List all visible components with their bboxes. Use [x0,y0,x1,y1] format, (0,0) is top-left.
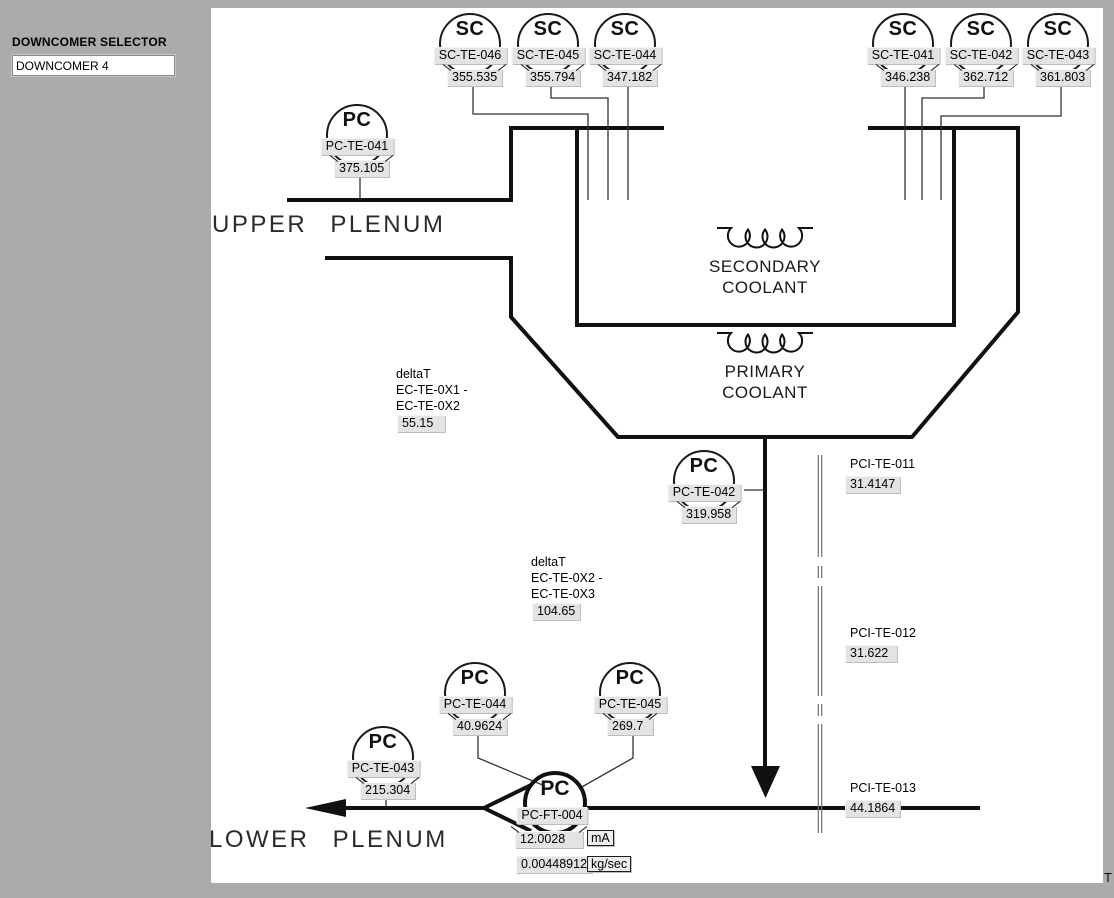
instrument-value: 355.794 [525,69,580,86]
delta-t-tag-a: EC-TE-0X2 - [531,570,641,586]
instrument-value: 362.712 [958,69,1013,86]
flow-rate-unit: kg/sec [587,856,631,872]
delta-t-tag-b: EC-TE-0X3 [531,586,641,602]
instrument-value: 319.958 [681,506,736,523]
delta-t-title: deltaT [396,366,506,382]
delta-t-value: 55.15 [397,415,445,432]
instrument-value: 347.182 [602,69,657,86]
secondary-coolant-label: SECONDARY COOLANT [709,256,821,298]
instrument-sc-te-041: SC SC-TE-041 346.238 [872,13,934,75]
instrument-sc-te-045: SC SC-TE-045 355.794 [517,13,579,75]
instrument-pc-te-045: PC PC-TE-045 269.7 [599,662,661,724]
instrument-pc-te-044: PC PC-TE-044 40.9624 [444,662,506,724]
flow-rate-value: 0.00448912 [516,856,592,873]
instrument-sc-te-044: SC SC-TE-044 347.182 [594,13,656,75]
pci-te-012-block: PCI-TE-012 31.622 [845,626,915,666]
instrument-sc-te-043: SC SC-TE-043 361.803 [1027,13,1089,75]
pci-sensor-tag: PCI-TE-012 [850,626,916,640]
downcomer-selector-input[interactable] [12,55,175,76]
instrument-letter: PC [673,455,735,478]
instrument-sc-te-042: SC SC-TE-042 362.712 [950,13,1012,75]
lower-plenum-label: LOWER PLENUM [209,826,448,854]
instrument-letter: PC [326,109,388,132]
delta-t-block-2: deltaT EC-TE-0X2 - EC-TE-0X3 104.65 [531,554,641,624]
upper-plenum-label: UPPER PLENUM [212,211,445,239]
instrument-sc-te-046: SC SC-TE-046 355.535 [439,13,501,75]
instrument-tag: SC-TE-042 [945,47,1018,64]
primary-coolant-line1: PRIMARY [722,361,808,382]
delta-t-tag-a: EC-TE-0X1 - [396,382,506,398]
delta-t-tag-b: EC-TE-0X2 [396,398,506,414]
instrument-letter: SC [594,18,656,41]
instrument-tag: PC-TE-043 [347,760,420,777]
instrument-value: 215.304 [360,782,415,799]
instrument-letter: SC [1027,18,1089,41]
instrument-tag: PC-TE-044 [439,696,512,713]
instrument-value: 375.105 [334,160,389,177]
primary-coolant-label: PRIMARY COOLANT [722,361,808,403]
primary-coolant-line2: COOLANT [722,382,808,403]
instrument-value: 361.803 [1035,69,1090,86]
instrument-letter: PC [599,667,661,690]
flow-current-value: 12.0028 [515,831,583,848]
instrument-pc-te-043: PC PC-TE-043 215.304 [352,726,414,788]
delta-t-block-1: deltaT EC-TE-0X1 - EC-TE-0X2 55.15 [396,366,506,436]
secondary-coolant-line2: COOLANT [709,277,821,298]
pci-sensor-tag: PCI-TE-013 [850,781,916,795]
instrument-letter: SC [950,18,1012,41]
instrument-tag: SC-TE-044 [589,47,662,64]
instrument-value: 355.535 [447,69,502,86]
instrument-tag: PC-TE-042 [668,484,741,501]
corner-text: T [1104,870,1112,885]
pci-sensor-tag: PCI-TE-011 [850,457,915,471]
application-window: DOWNCOMER SELECTOR [0,0,1114,898]
instrument-value: 269.7 [607,718,653,735]
instrument-tag: PC-TE-041 [321,138,394,155]
instrument-letter: PC [444,667,506,690]
delta-t-title: deltaT [531,554,641,570]
instrument-letter: SC [439,18,501,41]
delta-t-value: 104.65 [532,603,580,620]
instrument-letter: SC [872,18,934,41]
instrument-tag: PC-TE-045 [594,696,667,713]
instrument-value: 346.238 [880,69,935,86]
instrument-pc-te-041: PC PC-TE-041 375.105 [326,104,388,166]
pci-te-011-block: PCI-TE-011 31.4147 [845,457,915,497]
instrument-tag: SC-TE-043 [1022,47,1095,64]
pci-sensor-value: 31.4147 [845,476,900,493]
instrument-letter: SC [517,18,579,41]
instrument-tag: PC-FT-004 [516,807,587,824]
pci-sensor-value: 31.622 [845,645,897,662]
instrument-tag: SC-TE-046 [434,47,507,64]
instrument-tag: SC-TE-045 [512,47,585,64]
instrument-value: 40.9624 [452,718,507,735]
instrument-tag: SC-TE-041 [867,47,940,64]
secondary-coolant-line1: SECONDARY [709,256,821,277]
pci-sensor-value: 44.1864 [845,800,900,817]
instrument-letter: PC [352,731,414,754]
pci-te-013-block: PCI-TE-013 44.1864 [845,781,915,821]
downcomer-selector-label: DOWNCOMER SELECTOR [12,35,167,49]
instrument-pc-te-042: PC PC-TE-042 319.958 [673,450,735,512]
instrument-letter: PC [523,777,587,801]
flow-current-unit: mA [587,830,614,846]
